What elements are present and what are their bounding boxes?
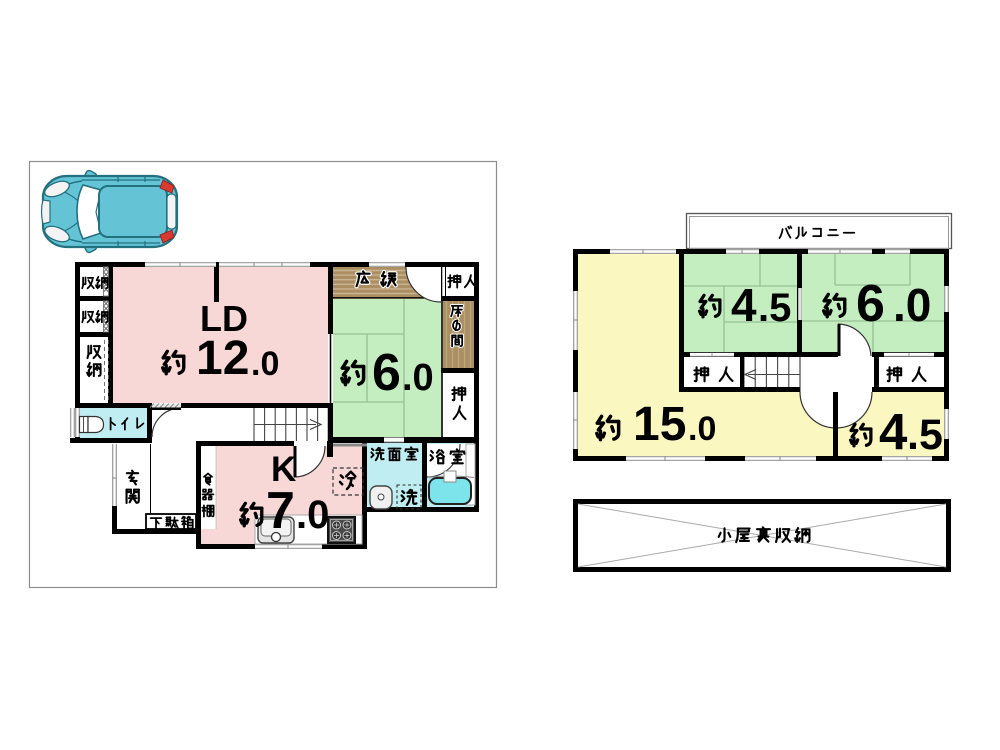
svg-text:12: 12 — [196, 332, 249, 385]
svg-text:.0: .0 — [688, 410, 716, 448]
svg-text:4: 4 — [731, 279, 757, 331]
svg-text:.0: .0 — [402, 357, 434, 399]
svg-text:.0: .0 — [893, 279, 931, 331]
svg-text:7: 7 — [266, 482, 295, 540]
svg-text:15: 15 — [633, 398, 686, 451]
svg-text:.5: .5 — [907, 411, 943, 459]
svg-text:4: 4 — [879, 403, 908, 460]
svg-text:.0: .0 — [251, 345, 279, 383]
svg-text:6: 6 — [856, 275, 885, 333]
svg-text:.5: .5 — [758, 286, 791, 330]
svg-text:6: 6 — [372, 344, 401, 402]
svg-text:.0: .0 — [296, 493, 329, 537]
